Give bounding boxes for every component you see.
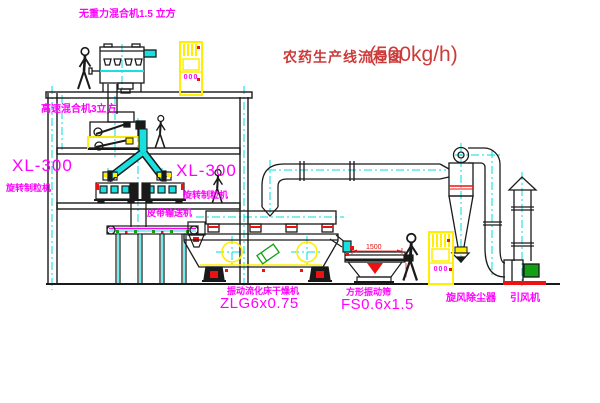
label-top-mixer: 无重力混合机1.5 立方 (79, 10, 176, 20)
sieve-width-dimension: 1500 (366, 244, 382, 251)
dryer-feet (202, 267, 332, 281)
control-cabinet-right (429, 232, 453, 284)
fan-base (503, 281, 546, 285)
label-granulator-right-model: XL-300 (176, 162, 237, 179)
label-sieve-model: FS0.6x1.5 (341, 297, 414, 312)
label-granulator-left-model: XL-300 (12, 157, 73, 174)
induced-draft-fan (503, 260, 546, 285)
conveyor-legs (116, 234, 186, 283)
label-cyclone: 旋风除尘器 (446, 294, 496, 304)
control-cabinet-top (180, 42, 202, 95)
cabinet-top-display: 000 (182, 74, 200, 81)
dryer-hood-stubs (208, 224, 333, 232)
vibrating-sieve (330, 235, 413, 282)
person-floor2 (155, 116, 165, 148)
label-floor2-mixer: 高速混合机3立方 (41, 105, 117, 115)
label-granulator-right-name: 旋转制粒机 (183, 191, 228, 200)
process-flow-diagram: 无重力混合机1.5 立方 农药生产线流程图 (500kg/h) 高速混合机3立方… (0, 0, 600, 403)
label-fan: 引风机 (510, 294, 540, 304)
label-belt-conveyor: 皮带输送机 (147, 209, 192, 218)
fan-motor (524, 264, 539, 277)
label-dryer-model: ZLG6x0.75 (220, 296, 299, 311)
rotary-granulator-left (94, 171, 140, 203)
cabinet-right-display: 000 (431, 266, 451, 273)
high-speed-mixer (88, 112, 145, 150)
vibration-motor (257, 244, 279, 264)
exhaust-duct (262, 161, 449, 216)
label-granulator-left-name: 旋转制粒机 (6, 184, 51, 193)
diagram-title-capacity: (500kg/h) (369, 44, 458, 65)
fluid-bed-dryer (184, 211, 338, 281)
